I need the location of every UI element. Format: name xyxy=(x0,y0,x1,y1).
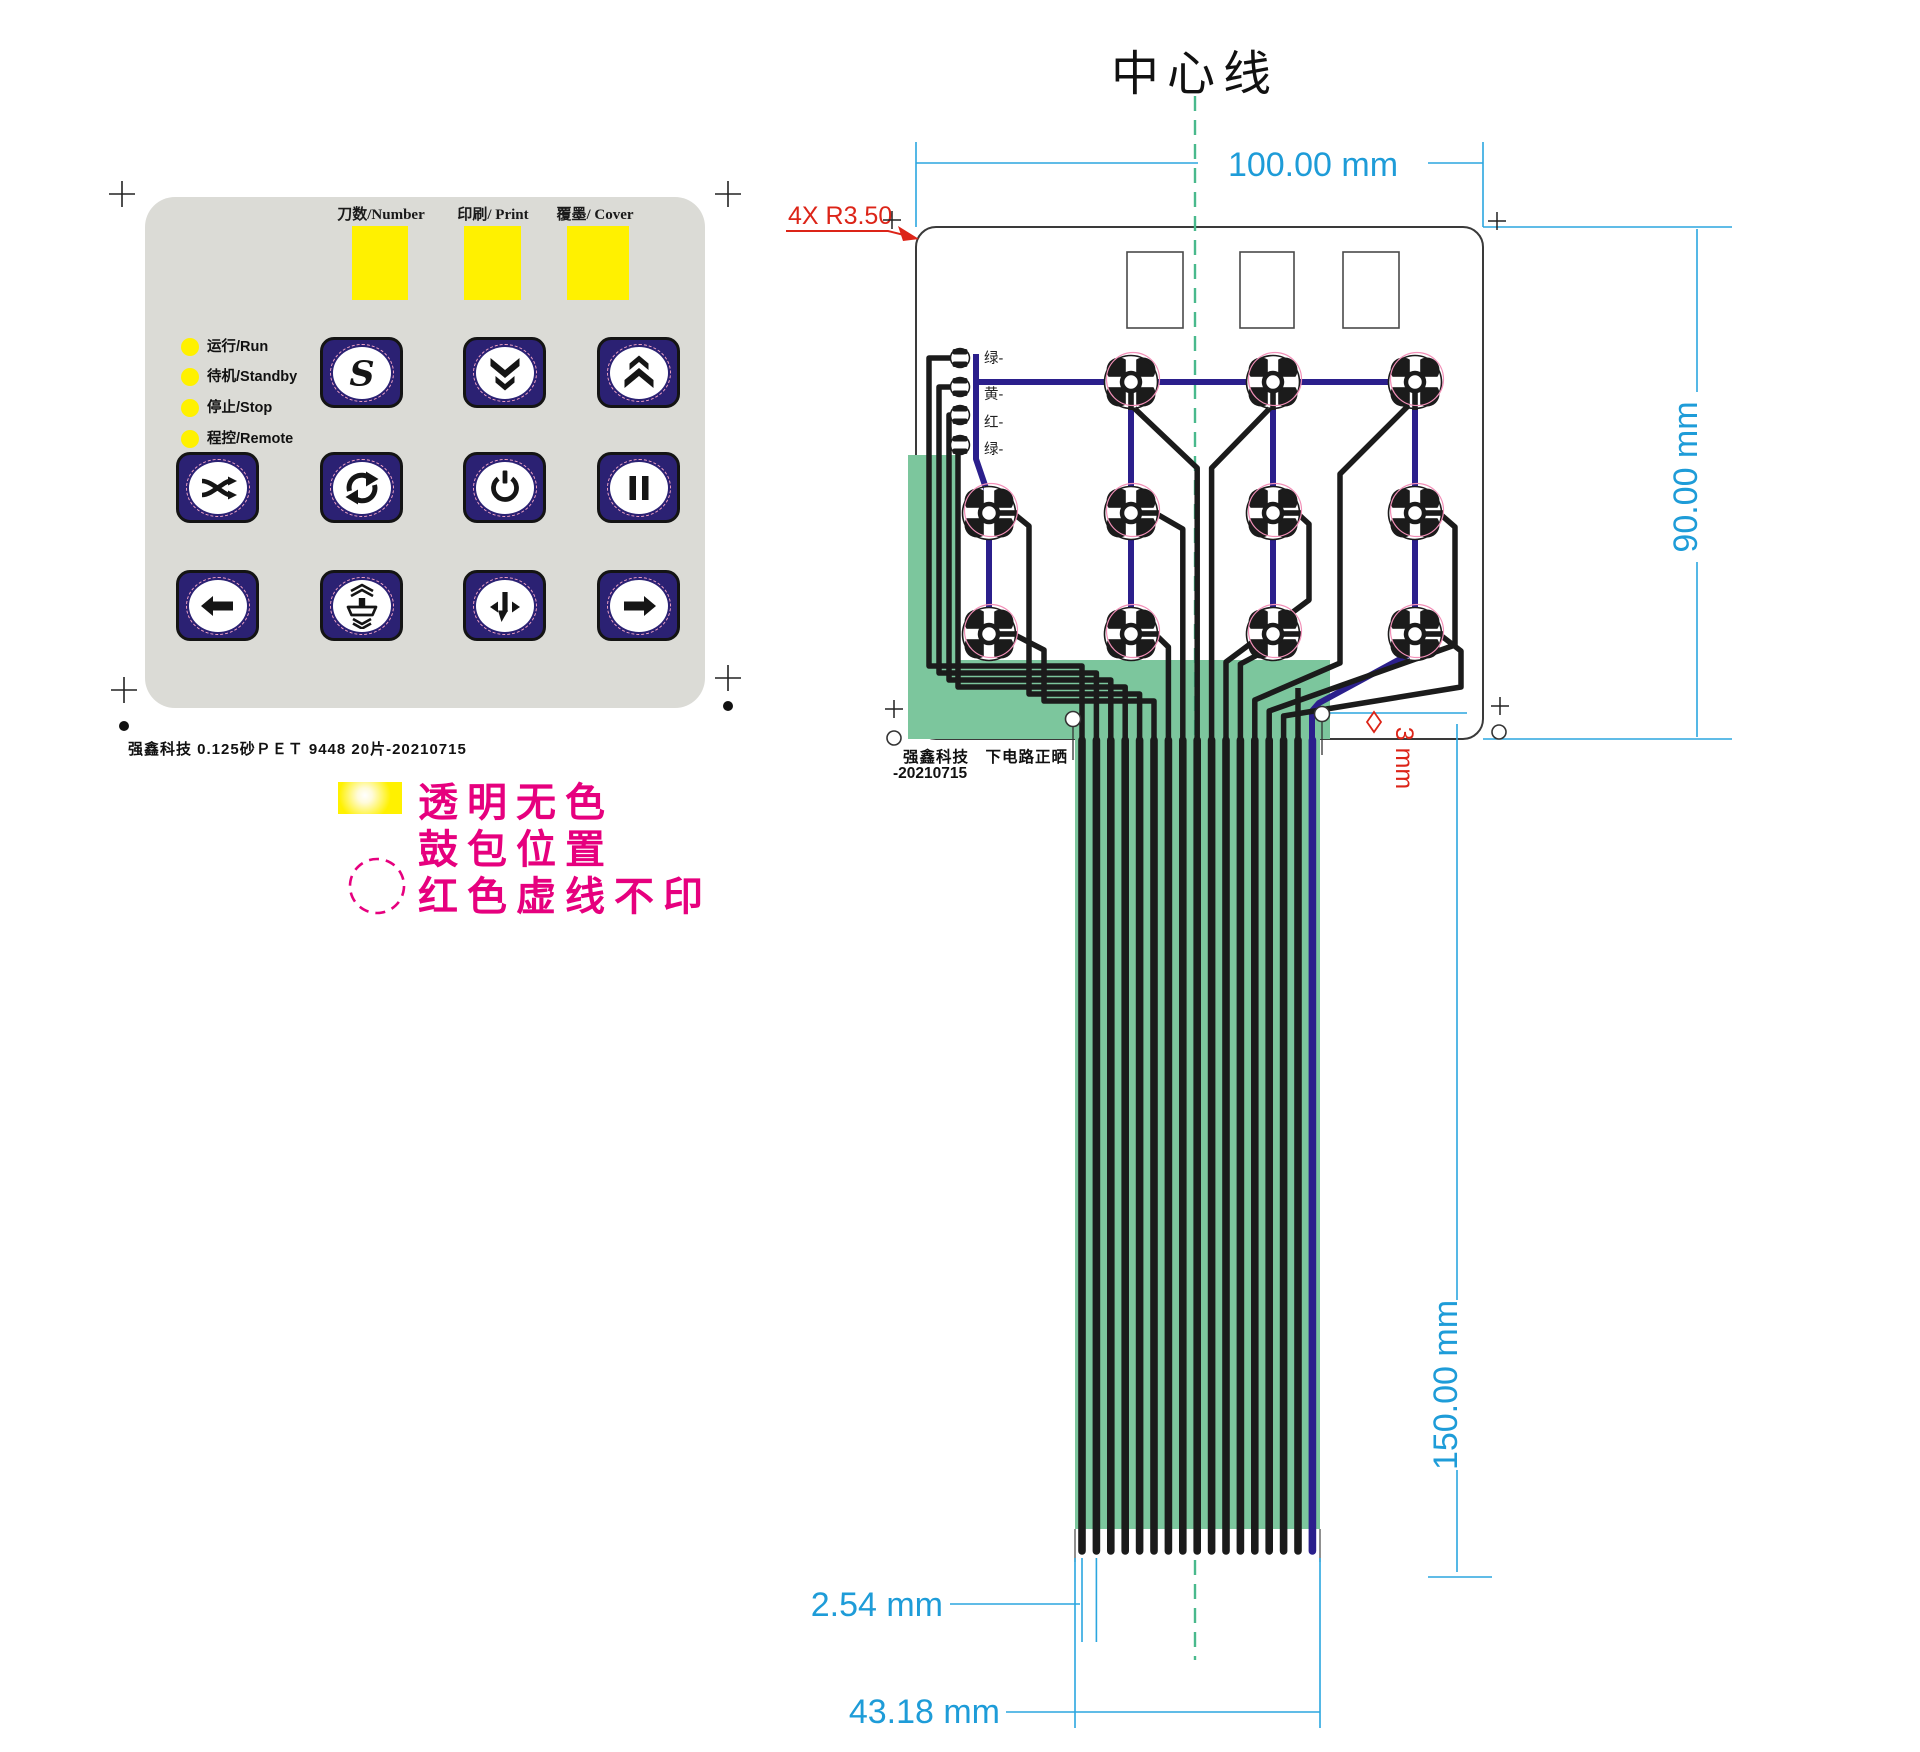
diameter-symbol xyxy=(1367,712,1381,732)
dot-mark xyxy=(723,701,733,711)
crosshair-mark xyxy=(885,700,903,718)
keypad-material-caption: 强鑫科技 0.125砂ＰＥＴ 9448 20片-20210715 xyxy=(128,738,467,759)
dim-width: 100.00 mm xyxy=(1228,146,1398,184)
led-label-run: 运行/Run xyxy=(207,338,268,356)
arrow-left-icon xyxy=(196,584,240,628)
switch-pad xyxy=(1104,605,1160,662)
alignment-hole xyxy=(1315,707,1330,722)
keypad-button-press xyxy=(320,570,403,641)
press-platen-icon xyxy=(339,583,385,629)
switch-pad xyxy=(1104,353,1160,411)
connector-fingers xyxy=(1073,722,1322,1562)
circuit-panel-outline xyxy=(916,227,1483,739)
pause-icon xyxy=(617,466,661,510)
crosshair-mark xyxy=(109,181,135,207)
led-pad-label-yellow: 黄- xyxy=(984,386,1003,403)
display-window-number xyxy=(352,226,408,300)
crosshair-mark xyxy=(715,181,741,207)
red-annotations: 4X R3.50 3 mm xyxy=(786,202,1418,789)
switch-pad xyxy=(1388,605,1444,662)
display-window-print xyxy=(464,226,521,300)
keypad-button-pause xyxy=(597,452,680,523)
led-label-standby: 待机/Standby xyxy=(207,368,297,386)
keypad-button-down xyxy=(463,337,546,408)
switch-pad xyxy=(1388,353,1444,411)
paper-feed-icon xyxy=(483,584,527,628)
arrow-right-icon xyxy=(617,584,661,628)
window-label-print: 印刷/ Print xyxy=(457,203,528,223)
chevron-double-up-icon xyxy=(617,351,661,395)
common-traces-blue xyxy=(976,354,1415,745)
switch-pad xyxy=(1246,605,1302,662)
display-window-cover xyxy=(567,226,629,300)
dim-pin-pitch: 2.54 mm xyxy=(811,1586,943,1624)
chevron-double-down-icon xyxy=(483,351,527,395)
key-switch-pads xyxy=(962,353,1444,662)
led-pads xyxy=(951,349,970,455)
led-remote xyxy=(181,430,199,448)
dot-mark xyxy=(119,721,129,731)
alignment-hole xyxy=(1066,712,1081,727)
switch-pad xyxy=(1246,484,1302,541)
led-pad-label-green2: 绿- xyxy=(984,441,1003,458)
keypad-button-cycle xyxy=(320,452,403,523)
keypad-button-shuffle xyxy=(176,452,259,523)
alignment-hole xyxy=(1492,725,1506,739)
switch-pad xyxy=(1388,484,1444,541)
cycle-icon xyxy=(340,466,384,510)
circuit-led-windows xyxy=(1127,252,1399,328)
drawing-title: 中心线 xyxy=(1111,48,1279,101)
switch-pad xyxy=(962,484,1018,541)
dim-tail-length: 150.00 mm xyxy=(1427,1300,1465,1470)
shuffle-icon xyxy=(196,466,240,510)
led-label-remote: 程控/Remote xyxy=(207,430,293,448)
dimension-lines xyxy=(916,142,1732,1728)
keypad-button-power xyxy=(463,452,546,523)
signal-traces-black xyxy=(929,358,1461,745)
flex-green-area xyxy=(908,455,1330,1529)
led-standby xyxy=(181,368,199,386)
corner-radius-note: 4X R3.50 xyxy=(788,202,892,230)
led-label-stop: 停止/Stop xyxy=(207,399,272,417)
s-icon: S xyxy=(340,351,384,395)
circuit-caption-line1: 强鑫科技 下电路正晒 xyxy=(903,747,1068,766)
dim-tail-width: 43.18 mm xyxy=(849,1693,1000,1731)
power-icon xyxy=(483,466,527,510)
switch-pad xyxy=(1104,484,1160,541)
keypad-button-feed xyxy=(463,570,546,641)
circuit-caption-line2: -20210715 xyxy=(893,765,968,782)
switch-pad xyxy=(962,605,1018,662)
alignment-hole xyxy=(887,731,901,745)
keypad-overlay-panel: 刀数/Number 印刷/ Print 覆墨/ Cover 运行/Run 待机/… xyxy=(145,197,705,708)
window-label-cover: 覆墨/ Cover xyxy=(556,203,633,223)
crosshair-mark xyxy=(883,211,901,229)
led-pad-label-red: 红- xyxy=(984,414,1003,431)
led-run xyxy=(181,338,199,356)
legend-yellow-swatch xyxy=(338,782,402,814)
corner-radius-arrow xyxy=(898,226,919,241)
svg-text:S: S xyxy=(349,353,374,394)
led-pad-label-green1: 绿- xyxy=(984,350,1003,367)
crosshair-mark xyxy=(1488,212,1506,230)
crosshair-mark xyxy=(715,665,741,691)
keypad-button-left xyxy=(176,570,259,641)
legend-dashed-line-note: 红色虚线不印 xyxy=(418,864,712,922)
legend-dashed-circle xyxy=(350,859,404,913)
membrane-switch-drawing: { "keypad": { "window_labels": ["刀数/Numb… xyxy=(0,0,1920,1752)
keypad-button-up xyxy=(597,337,680,408)
dim-height: 90.00 mm xyxy=(1667,401,1705,552)
switch-pad xyxy=(1246,353,1302,411)
keypad-button-right xyxy=(597,570,680,641)
led-stop xyxy=(181,399,199,417)
crosshair-mark xyxy=(111,677,137,703)
window-label-number: 刀数/Number xyxy=(337,203,425,223)
crosshair-mark xyxy=(1491,697,1509,715)
hole-diameter-note: 3 mm xyxy=(1390,727,1418,790)
keypad-button-s: S xyxy=(320,337,403,408)
